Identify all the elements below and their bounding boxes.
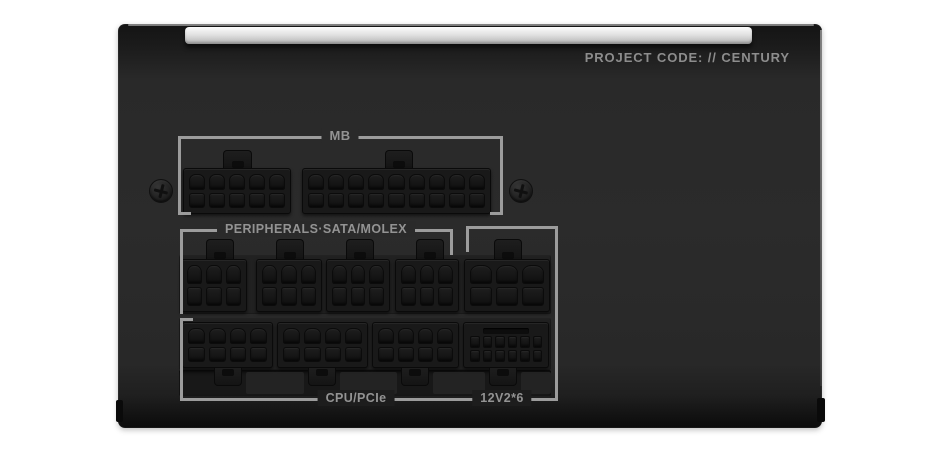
pin-socket xyxy=(269,174,285,190)
pin-socket xyxy=(188,347,205,363)
cpu-pcie-connector-8pin xyxy=(182,322,273,368)
pin-socket xyxy=(304,347,321,363)
pin-socket xyxy=(206,287,221,306)
pin-socket xyxy=(522,265,544,284)
mb-connector-10pin xyxy=(183,168,291,214)
mb-bracket-tick xyxy=(178,212,191,215)
pin-socket xyxy=(209,347,226,363)
pin-socket xyxy=(533,350,543,362)
mb-bracket-tick xyxy=(490,212,503,215)
mb-group-label: MB xyxy=(321,128,358,144)
pin-socket xyxy=(469,193,485,209)
pin-socket xyxy=(470,336,480,348)
pin-socket xyxy=(188,328,205,344)
case-top-bevel xyxy=(128,24,814,26)
pin-socket xyxy=(226,287,241,306)
pin-socket xyxy=(189,174,205,190)
clip-tab xyxy=(308,368,336,386)
pin-socket xyxy=(470,265,492,284)
pin-socket xyxy=(328,193,344,209)
pin-socket xyxy=(378,328,394,344)
pin-socket xyxy=(508,336,518,348)
pin-socket xyxy=(533,336,543,348)
recess-block xyxy=(246,372,304,394)
pin-socket xyxy=(496,287,518,306)
pin-socket xyxy=(345,328,362,344)
screw-icon xyxy=(149,179,173,203)
pin-socket xyxy=(249,174,265,190)
pin-socket xyxy=(269,193,285,209)
screw-icon xyxy=(509,179,533,203)
peripherals-bracket-left-line xyxy=(180,229,183,314)
clip-tab xyxy=(385,150,413,169)
pin-socket xyxy=(420,265,435,284)
peripheral-connector-6pin xyxy=(256,259,322,312)
mb-bracket-right-line xyxy=(500,136,503,215)
phillips-cross-icon xyxy=(508,178,535,205)
pin-socket xyxy=(483,336,493,348)
clip-tab xyxy=(276,239,304,260)
pin-socket xyxy=(209,328,226,344)
pin-socket xyxy=(308,193,324,209)
pin-socket xyxy=(496,265,518,284)
peripheral-connector-6pin xyxy=(395,259,459,312)
peripheral-connector-6pin xyxy=(464,259,550,312)
pin-socket xyxy=(229,193,245,209)
case-silver-edge-bar xyxy=(185,27,752,44)
cpu-pcie-group-label: CPU/PCIe xyxy=(318,390,395,406)
pin-socket xyxy=(301,287,316,306)
pin-socket xyxy=(229,174,245,190)
pin-socket xyxy=(332,265,347,284)
clip-tab xyxy=(489,368,517,386)
pin-socket xyxy=(283,347,300,363)
pin-socket xyxy=(470,287,492,306)
case-left-notch xyxy=(116,400,123,422)
mb-connector-18pin xyxy=(302,168,491,214)
pin-socket xyxy=(189,193,205,209)
pin-socket xyxy=(409,193,425,209)
12v2x6-connector-16pin xyxy=(463,322,549,368)
pin-socket xyxy=(398,328,414,344)
pin-socket xyxy=(308,174,324,190)
pin-socket xyxy=(418,347,434,363)
pin-socket xyxy=(449,193,465,209)
mb-bracket-left-line xyxy=(178,136,181,215)
pin-socket xyxy=(325,347,342,363)
pin-socket xyxy=(281,265,296,284)
phillips-cross-icon xyxy=(148,178,175,205)
pin-socket xyxy=(495,350,505,362)
case-right-notch xyxy=(817,398,825,422)
pin-socket xyxy=(429,193,445,209)
pin-socket xyxy=(301,265,316,284)
pin-socket xyxy=(520,350,530,362)
pin-socket xyxy=(508,350,518,362)
project-code-text: PROJECT CODE: // CENTURY xyxy=(585,50,790,65)
case-right-bevel xyxy=(820,30,822,386)
peripherals-group-label: PERIPHERALS·SATA/MOLEX xyxy=(217,221,415,237)
pin-socket xyxy=(388,174,404,190)
clip-tab xyxy=(214,368,242,386)
peripheral-connector-6pin xyxy=(326,259,390,312)
pin-socket xyxy=(262,265,277,284)
pin-socket xyxy=(187,265,202,284)
pin-socket xyxy=(369,287,384,306)
peripherals-bracket-right-line xyxy=(450,229,453,255)
cpu-bracket-left-line xyxy=(180,318,183,401)
pin-socket xyxy=(226,265,241,284)
clip-tab xyxy=(206,239,234,260)
clip-tab xyxy=(494,239,522,260)
pin-socket xyxy=(429,174,445,190)
pin-socket xyxy=(388,193,404,209)
clip-tab xyxy=(346,239,374,260)
clip-tab xyxy=(223,150,252,169)
clip-tab xyxy=(401,368,429,386)
pin-socket xyxy=(368,193,384,209)
pin-socket xyxy=(230,347,247,363)
pin-socket xyxy=(368,174,384,190)
12v-bracket-right-line xyxy=(555,226,558,401)
cpu-bracket-tick xyxy=(180,318,193,321)
12v2x6-group-label: 12V2*6 xyxy=(472,390,531,406)
clip-tab xyxy=(416,239,444,260)
pin-socket xyxy=(283,328,300,344)
pin-socket xyxy=(230,328,247,344)
pin-socket xyxy=(420,287,435,306)
pin-socket xyxy=(209,193,225,209)
pin-socket xyxy=(520,336,530,348)
pin-socket xyxy=(249,193,265,209)
pin-socket xyxy=(187,287,202,306)
pin-socket xyxy=(262,287,277,306)
pin-socket xyxy=(495,336,505,348)
pin-socket xyxy=(345,347,362,363)
pin-socket xyxy=(351,265,366,284)
pin-socket xyxy=(398,347,414,363)
pin-socket xyxy=(304,328,321,344)
product-render: PROJECT CODE: // CENTURY xyxy=(0,0,950,455)
pin-socket xyxy=(351,287,366,306)
pin-socket xyxy=(401,265,416,284)
pin-socket xyxy=(250,347,267,363)
pin-socket xyxy=(437,347,453,363)
pin-socket xyxy=(348,174,364,190)
peripheral-connector-6pin xyxy=(181,259,247,312)
pin-socket xyxy=(250,328,267,344)
pin-socket xyxy=(378,347,394,363)
pin-socket xyxy=(401,287,416,306)
pin-socket xyxy=(206,265,221,284)
pin-socket xyxy=(332,287,347,306)
12v-bracket-left-line xyxy=(466,226,469,252)
pin-socket xyxy=(418,328,434,344)
pin-socket xyxy=(470,350,480,362)
psu-case: PROJECT CODE: // CENTURY xyxy=(118,24,822,428)
12v-bracket-top-line xyxy=(466,226,558,229)
pin-socket xyxy=(469,174,485,190)
pin-socket xyxy=(409,174,425,190)
pin-socket xyxy=(348,193,364,209)
pin-socket xyxy=(281,287,296,306)
pin-socket xyxy=(449,174,465,190)
pin-socket xyxy=(325,328,342,344)
pin-socket xyxy=(437,328,453,344)
pin-socket xyxy=(209,174,225,190)
cpu-pcie-connector-8pin xyxy=(277,322,368,368)
pin-socket xyxy=(328,174,344,190)
cpu-pcie-connector-8pin xyxy=(372,322,459,368)
pin-socket xyxy=(369,265,384,284)
pin-socket xyxy=(438,265,453,284)
pin-socket xyxy=(438,287,453,306)
pin-socket xyxy=(522,287,544,306)
pin-socket xyxy=(483,350,493,362)
